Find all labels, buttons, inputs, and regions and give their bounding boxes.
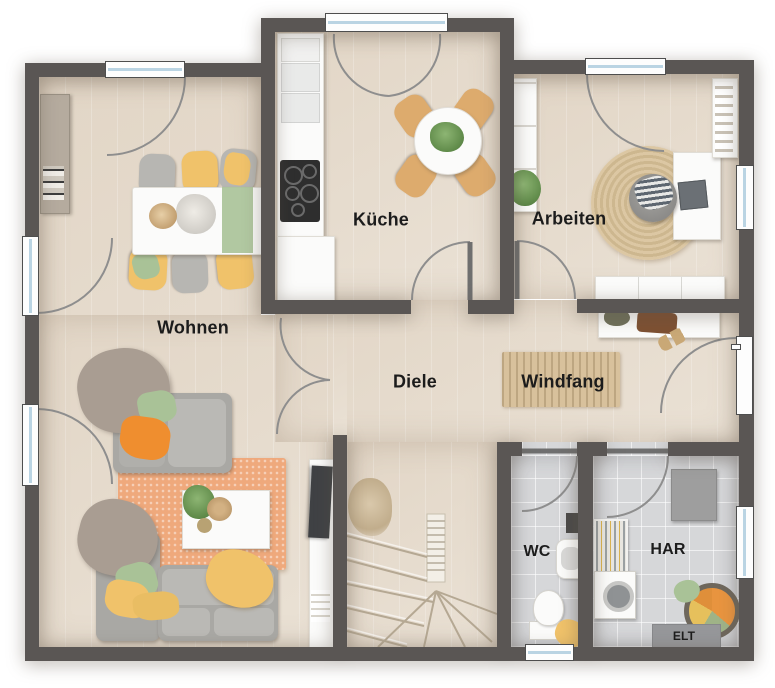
labels-layer: Wohnen Küche Arbeiten Diele Windfang WC …	[0, 0, 775, 688]
room-label-har: HAR	[650, 541, 685, 559]
room-label-windfang: Windfang	[521, 372, 604, 393]
room-label-diele: Diele	[393, 372, 437, 393]
room-label-wohnen: Wohnen	[157, 318, 229, 339]
room-label-wc: WC	[523, 543, 550, 561]
room-label-arbeiten: Arbeiten	[532, 209, 607, 230]
room-label-kueche: Küche	[353, 210, 409, 231]
room-label-elt: ELT	[673, 629, 695, 643]
floor-plan: Wohnen Küche Arbeiten Diele Windfang WC …	[0, 0, 775, 688]
